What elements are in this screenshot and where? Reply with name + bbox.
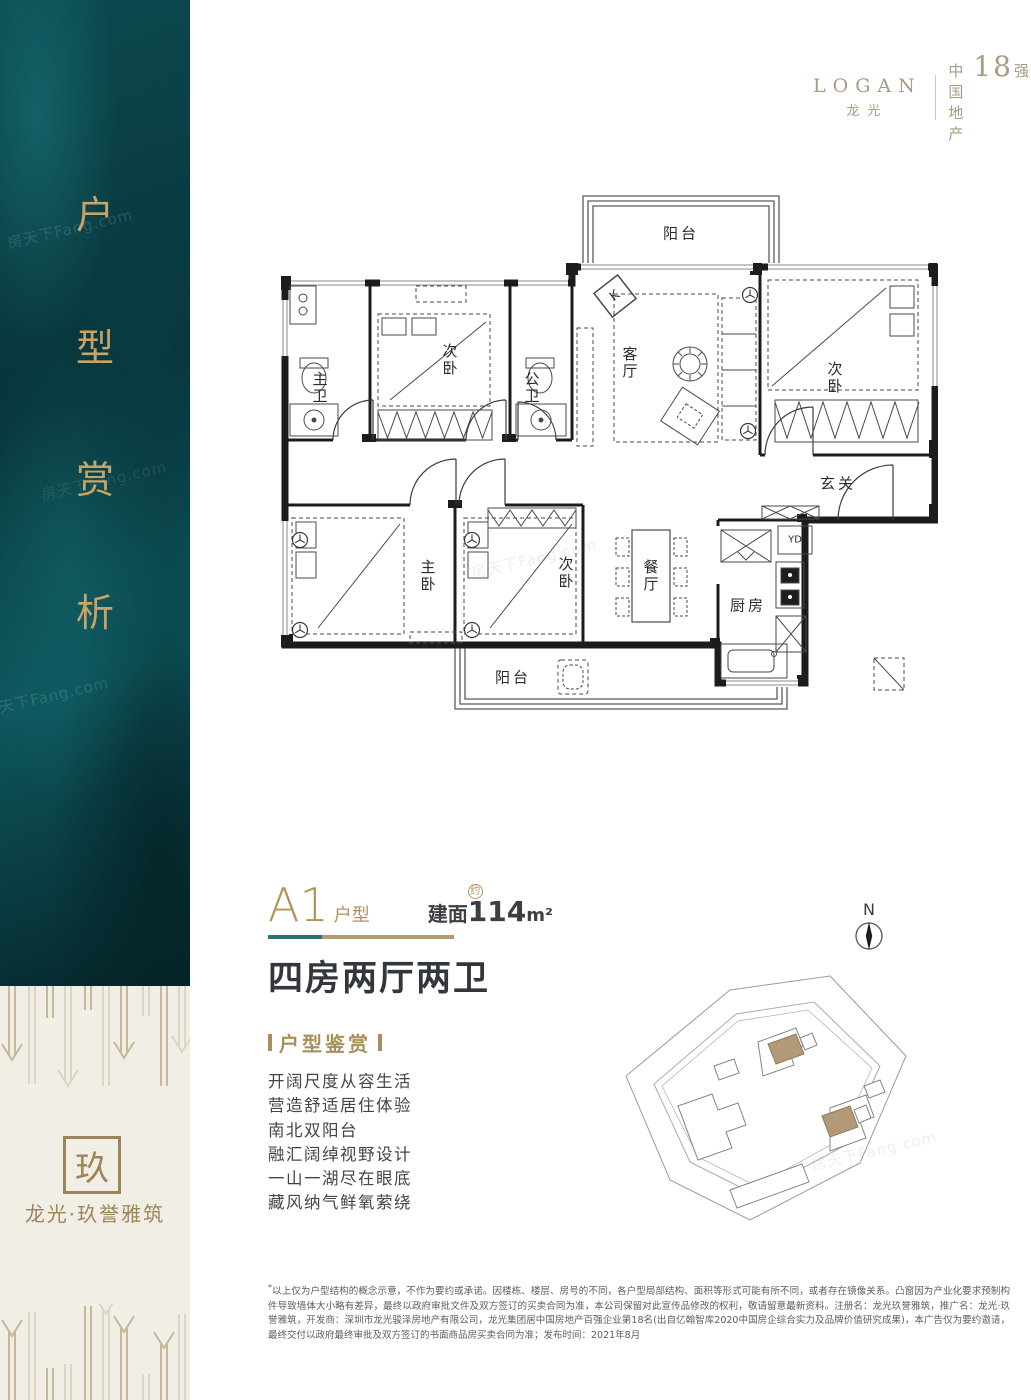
title-bar-right (378, 1034, 382, 1051)
brand-rank: 中国地产 18 强 (948, 50, 1031, 144)
appreciation-title-row: 户型鉴赏 (268, 1028, 412, 1057)
title-char-2: 型 (76, 329, 114, 367)
feature-item: 一山一湖尽在眼底 (268, 1167, 412, 1191)
room-label-bedroom-mid: 次卧 (556, 556, 577, 590)
logan-logo: LOGAN 龙光 (813, 75, 922, 119)
area-approx-badge: 约 (468, 884, 483, 899)
logan-logo-cn: 龙光 (813, 100, 922, 119)
room-label-dining: 餐厅 (641, 559, 662, 593)
room-label-public-bath: 公卫 (522, 371, 543, 405)
title-bar-left (268, 1034, 272, 1051)
unit-headline: 四房两厅两卫 (268, 950, 553, 1001)
unit-code-label: 户型 (334, 901, 370, 927)
room-label-master-bath: 主卫 (310, 371, 331, 405)
floor-plan-drawing (278, 188, 938, 718)
poster-page: 户 型 赏 析 房天下Fang.com 房天下Fang.com 房天下Fang.… (0, 0, 1031, 1400)
deco-pattern-bottom (0, 1304, 190, 1400)
unit-divider (268, 935, 454, 939)
compass: N (849, 900, 889, 959)
sidebar-vertical-title: 户 型 赏 析 (0, 196, 190, 632)
unit-code: A1 (268, 882, 329, 928)
room-label-entry: 玄关 (820, 473, 856, 494)
area-value: 114 (468, 898, 526, 926)
unit-info: A1 户型 建面 约 114 m² 四房两厅两卫 (268, 882, 553, 1001)
room-label-balcony-bottom: 阳台 (495, 667, 531, 688)
floor-plan: 阳台 主卫 次卧 公卫 客厅 次卧 玄关 主卧 次卧 餐厅 厨房 YD 阳台 K (278, 188, 938, 718)
feature-item: 开阔尺度从容生活 (268, 1070, 412, 1094)
room-label-bedroom-right: 次卧 (825, 361, 846, 395)
appreciation-title: 户型鉴赏 (279, 1028, 371, 1057)
room-label-bedroom-top: 次卧 (440, 343, 461, 377)
disclaimer: *以上仅为户型结构的概念示意，不作为要约或承诺。因楼栋、楼层、房号的不同，各户型… (268, 1281, 1010, 1344)
room-label-balcony-top: 阳台 (663, 223, 699, 244)
feature-item: 南北双阳台 (268, 1119, 412, 1143)
header-divider (935, 75, 936, 120)
sidebar-cream-panel: 玖 龙光·玖誉雅筑 (0, 986, 190, 1400)
logan-logo-en: LOGAN (813, 75, 922, 97)
disclaimer-text: 以上仅为户型结构的概念示意，不作为要约或承诺。因楼栋、楼层、房号的不同，各户型局… (268, 1286, 1010, 1341)
watermark: 房天下Fang.com (0, 672, 111, 721)
project-seal-logo: 玖 (63, 1136, 121, 1194)
rank-prefix: 中国地产 (948, 60, 972, 144)
feature-list: 开阔尺度从容生活 营造舒适居住体验 南北双阳台 融汇阔绰视野设计 一山一湖尽在眼… (268, 1070, 412, 1216)
feature-item: 融汇阔绰视野设计 (268, 1143, 412, 1167)
feature-item: 藏风纳气鲜氧萦绕 (268, 1191, 412, 1215)
deco-pattern-top (0, 986, 190, 1094)
area-unit: m² (526, 905, 553, 926)
rank-suffix: 强 (1014, 60, 1031, 81)
site-plan (618, 958, 1010, 1290)
sidebar-teal-panel: 户 型 赏 析 房天下Fang.com 房天下Fang.com 房天下Fang.… (0, 0, 190, 986)
brand-header: LOGAN 龙光 中国地产 18 强 (813, 50, 1031, 144)
title-char-1: 户 (76, 196, 114, 234)
compass-icon (849, 919, 889, 955)
feature-item: 营造舒适居住体验 (268, 1094, 412, 1118)
room-label-living: 客厅 (620, 346, 641, 380)
rank-number: 18 (973, 50, 1013, 83)
compass-north-label: N (849, 900, 889, 919)
title-char-3: 赏 (76, 461, 114, 499)
unit-area: 建面 约 114 m² (428, 898, 553, 927)
appreciation-section: 户型鉴赏 开阔尺度从容生活 营造舒适居住体验 南北双阳台 融汇阔绰视野设计 一山… (268, 1028, 412, 1216)
area-prefix: 建面 (428, 898, 468, 927)
title-char-4: 析 (76, 594, 114, 632)
room-label-kitchen: 厨房 (730, 595, 766, 616)
room-label-duct: YD (788, 535, 802, 546)
room-label-master-bed: 主卧 (418, 559, 439, 593)
project-name: 龙光·玖誉雅筑 (0, 1198, 190, 1227)
